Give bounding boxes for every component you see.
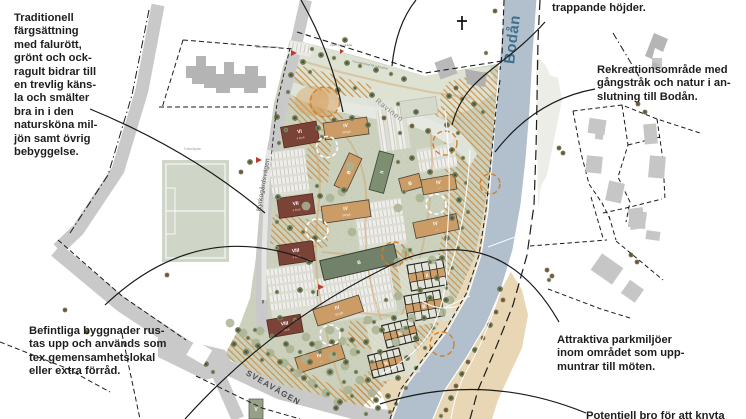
- svg-text:VIII: VIII: [292, 247, 301, 254]
- svg-text:Befintlig Samlible: Befintlig Samlible: [256, 45, 279, 49]
- svg-text:Infart till området: Infart till området: [330, 43, 353, 47]
- svg-text:Fotbollsplan: Fotbollsplan: [184, 147, 201, 151]
